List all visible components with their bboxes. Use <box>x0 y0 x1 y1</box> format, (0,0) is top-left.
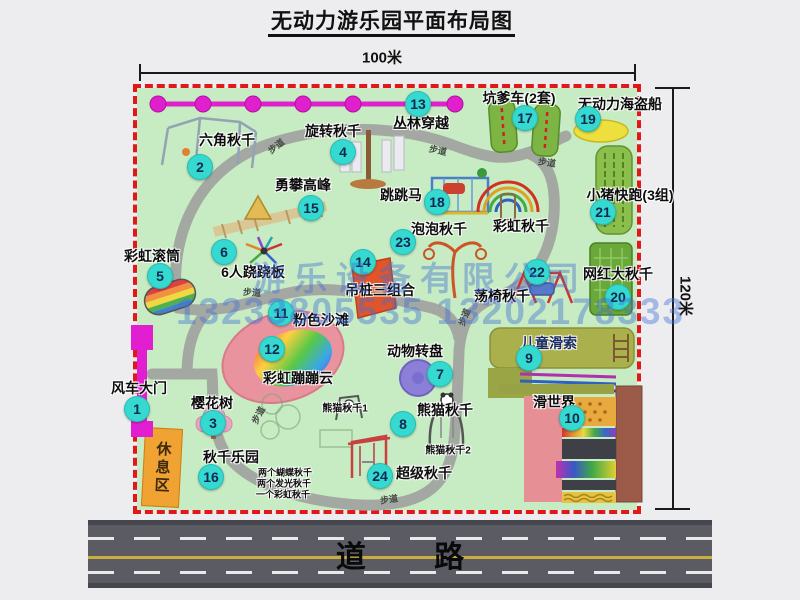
item-badge-19: 19 <box>575 106 601 132</box>
rest-area: 休息区 <box>141 427 183 508</box>
item-badge-20: 20 <box>605 284 631 310</box>
item-badge-6: 6 <box>211 239 237 265</box>
item-badge-3: 3 <box>200 410 226 436</box>
dimension-height-label: 120米 <box>676 276 697 316</box>
map-label-5: 熊猫秋千2 <box>425 442 471 457</box>
item-badge-10: 10 <box>559 405 585 431</box>
item-badge-7: 7 <box>427 361 453 387</box>
item-badge-4: 4 <box>330 139 356 165</box>
item-badge-18: 18 <box>424 189 450 215</box>
road-label: 道 路 <box>306 532 494 576</box>
item-label-7: 动物转盘 <box>387 341 443 361</box>
dimension-line-top <box>140 72 636 74</box>
road: 道 路 <box>88 520 712 588</box>
item-badge-12: 12 <box>259 336 285 362</box>
page-title: 无动力游乐园平面布局图 <box>271 5 513 35</box>
item-label-2: 六角秋千 <box>199 130 255 150</box>
item-badge-15: 15 <box>298 195 324 221</box>
dimension-tick <box>655 87 690 89</box>
item-label-12: 彩虹蹦蹦云 <box>263 368 333 388</box>
item-label-20: 网红大秋千 <box>583 264 653 284</box>
item-label-24: 超级秋千 <box>396 463 452 483</box>
item-label-18: 跳跳马 <box>380 185 422 205</box>
rest-area-label: 休息区 <box>150 440 174 495</box>
walkway-label-3: 步道 <box>243 285 262 299</box>
item-label-14: 吊桩三组合 <box>345 280 415 300</box>
dimension-line-right <box>672 88 674 510</box>
item-label-23: 泡泡秋千 <box>411 219 467 239</box>
dimension-width-label: 100米 <box>362 47 402 68</box>
item-badge-22: 22 <box>524 259 550 285</box>
dimension-tick <box>655 508 690 510</box>
item-badge-23: 23 <box>390 229 416 255</box>
item-badge-14: 14 <box>350 249 376 275</box>
item-badge-24: 24 <box>367 463 393 489</box>
map-label-3: 一个彩虹秋千 <box>256 488 310 501</box>
dimension-tick <box>634 64 636 81</box>
item-label-4: 旋转秋千 <box>305 121 361 141</box>
item-label-6: 6人跷跷板 <box>221 262 285 282</box>
item-badge-21: 21 <box>590 199 616 225</box>
item-badge-11: 11 <box>268 300 294 326</box>
item-label-5: 彩虹滚筒 <box>124 246 180 266</box>
item-badge-8: 8 <box>390 411 416 437</box>
item-badge-5: 5 <box>147 263 173 289</box>
map-label-0: 彩虹秋千 <box>493 216 549 236</box>
item-label-1: 风车大门 <box>111 378 167 398</box>
walkway-label-6: 步道 <box>379 491 399 506</box>
item-badge-16: 16 <box>198 464 224 490</box>
item-badge-13: 13 <box>405 91 431 117</box>
item-label-22: 荡椅秋千 <box>474 286 530 306</box>
walkway-label-2: 步道 <box>537 154 557 169</box>
item-badge-2: 2 <box>187 154 213 180</box>
title-underline <box>268 34 515 37</box>
item-label-15: 勇攀高峰 <box>275 175 331 195</box>
map-label-4: 熊猫秋千1 <box>322 400 368 415</box>
item-label-8: 熊猫秋千 <box>417 400 473 420</box>
dimension-tick <box>139 64 141 81</box>
playground-layout-plan: 无动力游乐园平面布局图 100米 120米 <box>0 0 800 600</box>
item-label-11: 粉色沙滩 <box>293 310 349 330</box>
item-badge-17: 17 <box>512 105 538 131</box>
item-badge-9: 9 <box>516 345 542 371</box>
item-badge-1: 1 <box>124 396 150 422</box>
